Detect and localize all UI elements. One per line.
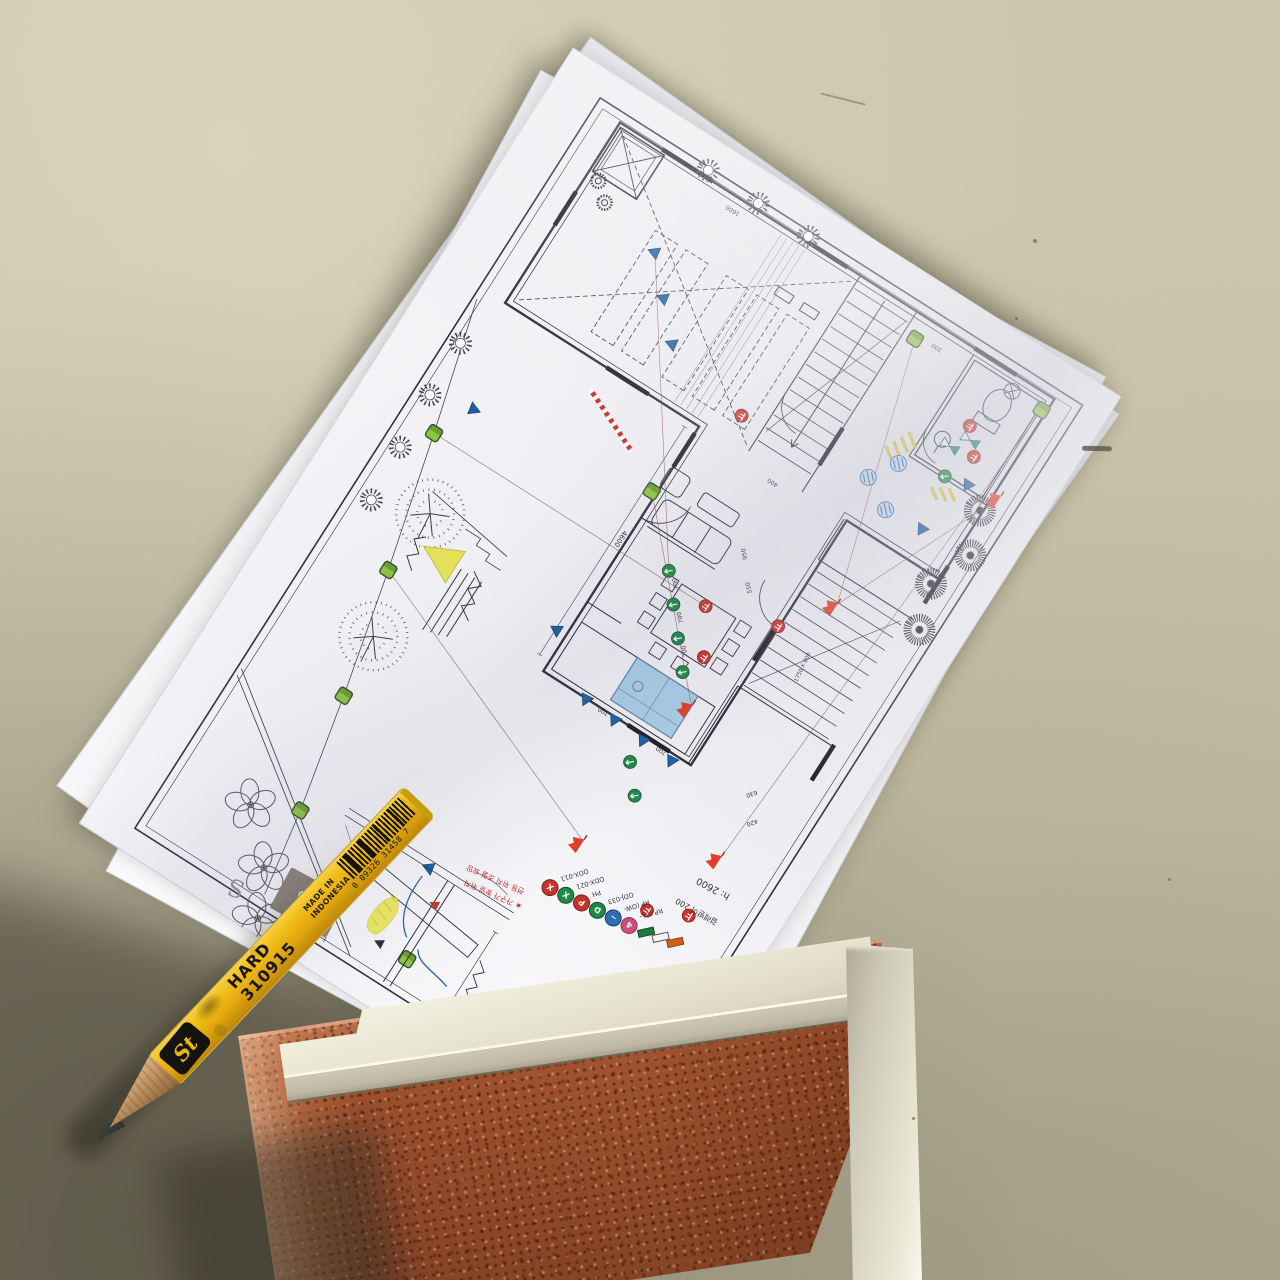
white-steel-vertical-leg xyxy=(846,944,922,1280)
floor-speck xyxy=(1168,878,1171,881)
floor-speck xyxy=(1015,317,1018,320)
floor-dash-mark xyxy=(1082,446,1112,452)
floor-speck xyxy=(912,1117,915,1120)
floor-speck xyxy=(1033,239,1037,243)
photo-scene: 4600 1600 300 400 700 700 700 700 700 55… xyxy=(0,0,1280,1280)
